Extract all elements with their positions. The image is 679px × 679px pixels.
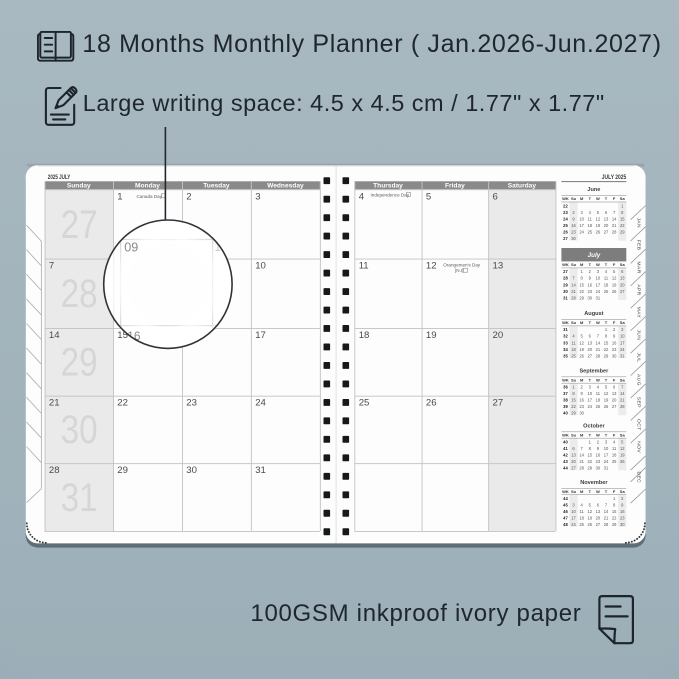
- svg-text:23: 23: [588, 289, 593, 294]
- svg-text:WK: WK: [562, 489, 569, 494]
- svg-text:39: 39: [563, 404, 568, 409]
- svg-text:13: 13: [588, 340, 593, 345]
- svg-text:10: 10: [255, 261, 266, 272]
- svg-text:WK: WK: [562, 377, 569, 382]
- svg-text:JAN: JAN: [636, 217, 642, 228]
- svg-text:28: 28: [596, 353, 601, 358]
- svg-text:13: 13: [612, 391, 617, 396]
- svg-text:15: 15: [620, 216, 625, 221]
- svg-text:Tuesday: Tuesday: [203, 183, 230, 190]
- svg-text:13: 13: [493, 261, 504, 272]
- svg-text:26: 26: [426, 398, 437, 409]
- svg-text:16: 16: [579, 398, 584, 403]
- svg-text:36: 36: [563, 385, 568, 390]
- svg-text:Saturday: Saturday: [508, 183, 537, 190]
- svg-text:22: 22: [579, 289, 584, 294]
- svg-text:17: 17: [255, 330, 266, 341]
- svg-text:30: 30: [612, 353, 617, 358]
- svg-text:16: 16: [620, 509, 625, 514]
- svg-text:27: 27: [61, 203, 98, 247]
- svg-text:29: 29: [571, 411, 576, 416]
- svg-text:Sa: Sa: [620, 196, 626, 201]
- svg-text:5: 5: [426, 191, 431, 202]
- svg-text:27: 27: [588, 353, 593, 358]
- svg-text:Orangemen's Day: Orangemen's Day: [443, 263, 481, 268]
- svg-text:Thursday: Thursday: [373, 183, 403, 190]
- svg-text:24: 24: [571, 522, 576, 527]
- svg-text:26: 26: [563, 230, 568, 235]
- svg-text:10: 10: [579, 216, 584, 221]
- svg-text:11: 11: [596, 391, 601, 396]
- svg-text:12: 12: [612, 276, 617, 281]
- svg-text:12: 12: [596, 216, 601, 221]
- svg-text:25: 25: [612, 459, 617, 464]
- svg-text:15: 15: [604, 340, 609, 345]
- svg-text:W: W: [596, 489, 600, 494]
- svg-text:21: 21: [604, 516, 609, 521]
- svg-text:WK: WK: [562, 320, 569, 325]
- svg-text:21: 21: [612, 223, 617, 228]
- svg-text:24: 24: [579, 230, 584, 235]
- svg-text:15: 15: [588, 453, 593, 458]
- svg-text:JUN: JUN: [636, 330, 642, 341]
- svg-text:DEC: DEC: [636, 472, 642, 484]
- svg-text:27: 27: [596, 522, 601, 527]
- svg-text:21: 21: [571, 289, 576, 294]
- svg-text:OCT: OCT: [636, 419, 642, 431]
- svg-text:W: W: [596, 377, 600, 382]
- svg-text:31: 31: [563, 327, 568, 332]
- svg-text:18: 18: [359, 330, 370, 341]
- svg-text:22: 22: [620, 223, 625, 228]
- svg-text:31: 31: [604, 466, 609, 471]
- svg-text:13: 13: [596, 509, 601, 514]
- svg-text:JUL: JUL: [636, 352, 642, 362]
- svg-text:14: 14: [49, 330, 60, 341]
- svg-text:29: 29: [563, 282, 568, 287]
- svg-text:23: 23: [596, 459, 601, 464]
- svg-text:19: 19: [426, 330, 437, 341]
- svg-text:26: 26: [612, 289, 617, 294]
- svg-text:AUG: AUG: [636, 374, 642, 386]
- svg-text:20: 20: [604, 223, 609, 228]
- svg-text:4: 4: [359, 191, 365, 202]
- svg-text:23: 23: [612, 347, 617, 352]
- svg-text:42: 42: [563, 453, 568, 458]
- svg-text:30: 30: [596, 466, 601, 471]
- svg-text:6: 6: [493, 191, 498, 202]
- svg-text:12: 12: [426, 261, 437, 272]
- svg-text:13: 13: [604, 216, 609, 221]
- svg-text:SEP: SEP: [636, 397, 642, 408]
- svg-text:18: 18: [588, 223, 593, 228]
- svg-text:30: 30: [588, 295, 593, 300]
- svg-text:31: 31: [596, 295, 601, 300]
- svg-text:October: October: [583, 424, 605, 430]
- svg-text:27: 27: [612, 404, 617, 409]
- svg-text:17: 17: [604, 453, 609, 458]
- svg-text:12: 12: [620, 446, 625, 451]
- svg-text:Friday: Friday: [445, 183, 465, 190]
- svg-text:17: 17: [588, 398, 593, 403]
- svg-text:FEB: FEB: [636, 240, 642, 251]
- svg-text:Wednesday: Wednesday: [267, 183, 304, 190]
- svg-text:44: 44: [563, 466, 568, 471]
- svg-text:MAR: MAR: [636, 262, 642, 274]
- svg-text:14: 14: [571, 282, 576, 287]
- svg-text:44: 44: [563, 496, 568, 501]
- svg-text:Su: Su: [571, 320, 577, 325]
- svg-text:28: 28: [563, 276, 568, 281]
- svg-text:11: 11: [359, 261, 369, 272]
- svg-text:32: 32: [563, 334, 568, 339]
- svg-text:31: 31: [255, 465, 266, 476]
- svg-text:14: 14: [579, 453, 584, 458]
- svg-text:15: 15: [571, 398, 576, 403]
- svg-text:09: 09: [124, 240, 138, 254]
- svg-text:12: 12: [579, 340, 584, 345]
- svg-text:22: 22: [563, 203, 568, 208]
- svg-text:11: 11: [580, 509, 585, 514]
- svg-text:25: 25: [588, 230, 593, 235]
- svg-text:22: 22: [588, 459, 593, 464]
- svg-text:12: 12: [588, 509, 593, 514]
- svg-text:23: 23: [186, 398, 197, 409]
- svg-text:17: 17: [571, 516, 576, 521]
- svg-text:41: 41: [563, 446, 568, 451]
- svg-text:26: 26: [620, 459, 625, 464]
- svg-text:29: 29: [117, 465, 128, 476]
- svg-text:27: 27: [620, 289, 625, 294]
- svg-text:11: 11: [588, 216, 593, 221]
- svg-text:40: 40: [563, 440, 568, 445]
- svg-text:24: 24: [596, 289, 601, 294]
- svg-text:25: 25: [604, 289, 609, 294]
- svg-text:27: 27: [493, 398, 504, 409]
- svg-text:15: 15: [579, 282, 584, 287]
- svg-text:APR: APR: [636, 284, 642, 295]
- svg-text:29: 29: [579, 295, 584, 300]
- svg-text:16: 16: [612, 340, 617, 345]
- svg-text:August: August: [584, 311, 603, 317]
- svg-text:19: 19: [612, 282, 617, 287]
- svg-text:27: 27: [604, 230, 609, 235]
- svg-text:28: 28: [61, 272, 98, 316]
- svg-text:27: 27: [563, 269, 568, 274]
- svg-text:2025 JULY: 2025 JULY: [48, 174, 71, 181]
- svg-text:28: 28: [612, 230, 617, 235]
- svg-text:22: 22: [612, 516, 617, 521]
- svg-text:17: 17: [596, 282, 601, 287]
- svg-text:24: 24: [620, 347, 625, 352]
- svg-text:10: 10: [620, 334, 625, 339]
- svg-text:22: 22: [604, 347, 609, 352]
- svg-text:10: 10: [596, 276, 601, 281]
- svg-text:24: 24: [255, 398, 266, 409]
- svg-text:20: 20: [493, 330, 504, 341]
- svg-text:Sa: Sa: [620, 489, 626, 494]
- svg-text:30: 30: [186, 465, 197, 476]
- svg-text:Canada Day: Canada Day: [137, 194, 163, 199]
- svg-text:30: 30: [563, 289, 568, 294]
- svg-text:27: 27: [571, 466, 576, 471]
- svg-text:29: 29: [612, 522, 617, 527]
- svg-text:19: 19: [596, 223, 601, 228]
- svg-text:30: 30: [571, 236, 576, 241]
- svg-text:3: 3: [255, 191, 260, 202]
- svg-text:37: 37: [563, 391, 568, 396]
- svg-text:1: 1: [117, 191, 122, 202]
- svg-text:27: 27: [563, 236, 568, 241]
- svg-text:46: 46: [563, 509, 568, 514]
- svg-text:26: 26: [604, 404, 609, 409]
- svg-text:23: 23: [579, 404, 584, 409]
- svg-text:25: 25: [579, 522, 584, 527]
- svg-text:18: 18: [604, 282, 609, 287]
- svg-text:September: September: [579, 369, 609, 375]
- svg-text:18: 18: [571, 347, 576, 352]
- svg-text:W: W: [596, 262, 600, 267]
- svg-text:W: W: [596, 196, 600, 201]
- svg-text:22: 22: [571, 404, 576, 409]
- svg-text:July: July: [588, 252, 601, 259]
- svg-text:13: 13: [620, 276, 625, 281]
- svg-text:24: 24: [604, 459, 609, 464]
- svg-text:38: 38: [563, 398, 568, 403]
- svg-text:40: 40: [563, 411, 568, 416]
- svg-text:25: 25: [563, 223, 568, 228]
- svg-text:43: 43: [563, 459, 568, 464]
- svg-text:23: 23: [571, 230, 576, 235]
- svg-text:Sa: Sa: [620, 262, 626, 267]
- svg-text:W: W: [596, 320, 600, 325]
- svg-text:Su: Su: [571, 489, 577, 494]
- svg-text:14: 14: [604, 509, 609, 514]
- svg-text:WK: WK: [562, 262, 569, 267]
- svg-text:13: 13: [571, 453, 576, 458]
- svg-text:WK: WK: [562, 196, 569, 201]
- svg-text:24: 24: [588, 404, 593, 409]
- svg-text:22: 22: [117, 398, 128, 409]
- svg-text:24: 24: [563, 216, 568, 221]
- svg-text:Sunday: Sunday: [67, 183, 91, 190]
- svg-text:26: 26: [596, 230, 601, 235]
- svg-text:30: 30: [579, 411, 584, 416]
- svg-text:14: 14: [620, 391, 625, 396]
- svg-text:15: 15: [612, 509, 617, 514]
- svg-text:29: 29: [588, 466, 593, 471]
- svg-text:7: 7: [49, 261, 54, 272]
- svg-text:10: 10: [604, 446, 609, 451]
- svg-text:18: 18: [579, 516, 584, 521]
- svg-text:Independence Day: Independence Day: [371, 192, 410, 197]
- svg-text:W: W: [596, 432, 600, 437]
- svg-text:November: November: [580, 480, 608, 486]
- svg-text:26: 26: [579, 353, 584, 358]
- svg-text:34: 34: [563, 347, 568, 352]
- svg-text:16: 16: [596, 453, 601, 458]
- svg-text:48: 48: [563, 522, 568, 527]
- svg-text:31: 31: [620, 353, 625, 358]
- svg-text:11: 11: [604, 276, 609, 281]
- svg-text:28: 28: [49, 465, 60, 476]
- svg-text:16: 16: [571, 223, 576, 228]
- svg-text:25: 25: [571, 353, 576, 358]
- svg-text:21: 21: [579, 459, 584, 464]
- svg-text:23: 23: [620, 516, 625, 521]
- svg-text:35: 35: [563, 353, 568, 358]
- svg-text:11: 11: [612, 446, 617, 451]
- svg-text:17: 17: [620, 340, 625, 345]
- svg-text:33: 33: [563, 340, 568, 345]
- svg-text:19: 19: [579, 347, 584, 352]
- svg-text:28: 28: [571, 295, 576, 300]
- svg-text:Su: Su: [571, 432, 577, 437]
- svg-text:21: 21: [596, 347, 601, 352]
- svg-text:2: 2: [186, 191, 191, 202]
- svg-text:14: 14: [612, 216, 617, 221]
- svg-text:29: 29: [604, 353, 609, 358]
- svg-text:[N.I]: [N.I]: [455, 268, 463, 273]
- svg-text:Monday: Monday: [135, 183, 160, 190]
- svg-text:30: 30: [61, 408, 98, 452]
- svg-text:Sa: Sa: [620, 377, 626, 382]
- svg-text:19: 19: [620, 453, 625, 458]
- svg-text:18: 18: [596, 398, 601, 403]
- svg-text:18: 18: [612, 453, 617, 458]
- svg-text:25: 25: [596, 404, 601, 409]
- svg-text:19: 19: [588, 516, 593, 521]
- svg-text:21: 21: [49, 398, 60, 409]
- svg-text:16: 16: [588, 282, 593, 287]
- svg-text:20: 20: [620, 282, 625, 287]
- svg-text:Su: Su: [571, 377, 577, 382]
- svg-text:20: 20: [588, 347, 593, 352]
- svg-text:Su: Su: [571, 196, 577, 201]
- svg-text:28: 28: [620, 404, 625, 409]
- svg-text:28: 28: [579, 466, 584, 471]
- svg-text:June: June: [587, 187, 600, 193]
- svg-text:31: 31: [563, 295, 568, 300]
- svg-text:26: 26: [588, 522, 593, 527]
- svg-text:10: 10: [588, 391, 593, 396]
- svg-text:WK: WK: [562, 432, 569, 437]
- svg-text:20: 20: [612, 398, 617, 403]
- svg-text:Su: Su: [571, 262, 577, 267]
- svg-text:23: 23: [563, 210, 568, 215]
- svg-text:12: 12: [604, 391, 609, 396]
- svg-text:31: 31: [61, 476, 98, 520]
- svg-text:28: 28: [604, 522, 609, 527]
- svg-text:25: 25: [359, 398, 370, 409]
- svg-text:NOV: NOV: [636, 441, 642, 453]
- svg-text:17: 17: [579, 223, 584, 228]
- svg-text:11: 11: [571, 340, 576, 345]
- svg-text:MAY: MAY: [636, 307, 642, 319]
- svg-text:10: 10: [571, 509, 576, 514]
- svg-text:29: 29: [61, 341, 98, 385]
- svg-text:45: 45: [563, 503, 568, 508]
- svg-text:47: 47: [563, 516, 568, 521]
- svg-text:30: 30: [620, 522, 625, 527]
- svg-text:19: 19: [604, 398, 609, 403]
- svg-text:29: 29: [620, 230, 625, 235]
- svg-text:Sa: Sa: [620, 432, 626, 437]
- svg-text:14: 14: [596, 340, 601, 345]
- svg-text:20: 20: [571, 459, 576, 464]
- svg-text:21: 21: [620, 398, 625, 403]
- svg-text:Sa: Sa: [620, 320, 626, 325]
- svg-text:JULY 2025: JULY 2025: [602, 174, 627, 181]
- svg-text:20: 20: [596, 516, 601, 521]
